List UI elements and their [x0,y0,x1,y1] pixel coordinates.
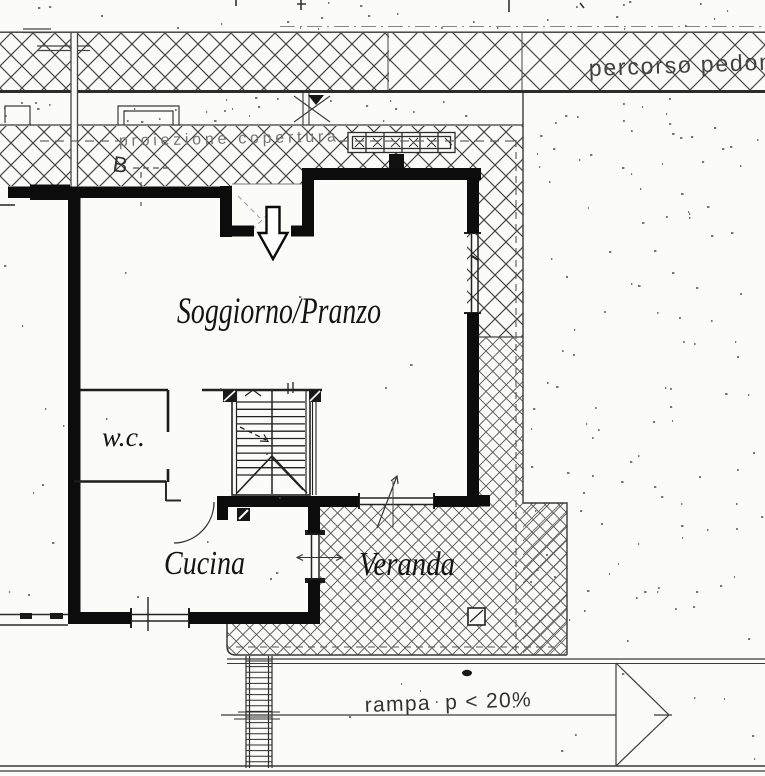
svg-text:w.c.: w.c. [102,422,145,452]
svg-text:Veranda: Veranda [359,546,455,583]
svg-text:Soggiorno/Pranzo: Soggiorno/Pranzo [177,291,381,332]
svg-text:Cucina: Cucina [164,545,245,582]
